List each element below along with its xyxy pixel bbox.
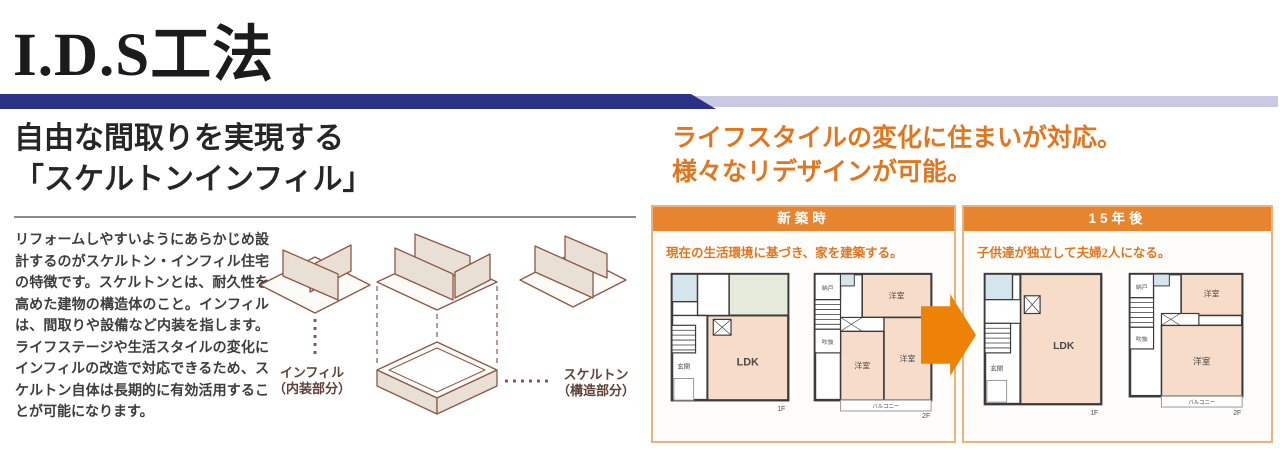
floor-label: 1F xyxy=(1090,410,1098,417)
balcony-label: バルコニー xyxy=(872,403,899,410)
room-label-ldk: LDK xyxy=(1053,341,1075,352)
floor-label: 1F xyxy=(777,406,785,413)
lifestyle-heading-line1: ライフスタイルの変化に住まいが対応。 xyxy=(672,122,1122,156)
skeleton-box xyxy=(377,342,497,414)
balcony-label: バルコニー xyxy=(1188,399,1215,406)
skeleton-sublabel: （構造部分） xyxy=(557,383,635,398)
floor-label: 2F xyxy=(922,413,930,420)
divider-light-segment xyxy=(640,96,1278,107)
infill-unit-left xyxy=(260,245,370,313)
room-label-nando: 納戸 xyxy=(1136,283,1148,291)
brochure-page: I.D.S工法 自由な間取りを実現する 「スケルトンインフィル」 リフォームしや… xyxy=(0,0,1280,465)
heading-underline xyxy=(14,216,636,218)
section-heading: 自由な間取りを実現する 「スケルトンインフィル」 xyxy=(14,118,373,200)
infill-unit-right xyxy=(520,236,626,307)
infill-unit-middle xyxy=(377,234,497,310)
floorplan-shinchiku-2f: 納戸 吹抜 洋室 洋室 洋室 バルコニー 2F xyxy=(811,269,939,421)
panel-15years-description: 子供達が独立して夫婦2人になる。 xyxy=(977,242,1271,261)
panel-shinchiku-description: 現在の生活環境に基づき、家を建築する。 xyxy=(666,242,954,261)
section-heading-line2: 「スケルトンインフィル」 xyxy=(14,159,373,200)
lifestyle-heading-line2: 様々なリデザインが可能。 xyxy=(672,156,1122,190)
floorplan-15years-1f: LDK 玄関 1F xyxy=(981,269,1109,421)
room-label-fukinuke: 吹抜 xyxy=(1136,335,1148,343)
room-label-genkan: 玄関 xyxy=(677,362,690,371)
room-label-genkan: 玄関 xyxy=(990,364,1003,373)
room-label-bedroom1: 洋室 xyxy=(1204,289,1220,299)
panel-15years-header: 15年後 xyxy=(964,207,1271,231)
room-label-bedroom1: 洋室 xyxy=(889,291,905,301)
room-label-fukinuke: 吹抜 xyxy=(822,338,834,346)
room-label-bedroom3: 洋室 xyxy=(900,354,916,364)
skeleton-label: スケルトン xyxy=(563,367,628,382)
body-paragraph: リフォームしやすいようにあらかじめ設計するのがスケルトン・インフィル住宅の特徴で… xyxy=(15,229,269,423)
floorplan-15years-2f: 納戸 吹抜 洋室 洋室 バルコニー 2F xyxy=(1126,269,1254,421)
walls xyxy=(672,274,788,400)
infill-sublabel: （内装部分） xyxy=(273,381,351,396)
floorplan-shinchiku-1f: LDK 玄関 1F xyxy=(668,269,796,421)
floor-label: 2F xyxy=(1233,410,1241,417)
room-label-bedroom2: 洋室 xyxy=(854,361,870,371)
room-label-nando: 納戸 xyxy=(822,284,834,292)
page-title: I.D.S工法 xyxy=(13,4,274,93)
panel-shinchiku-header: 新築時 xyxy=(653,207,954,231)
panel-shinchiku: 新築時 現在の生活環境に基づき、家を建築する。 LDK xyxy=(651,205,956,443)
walls xyxy=(985,274,1101,404)
lifestyle-heading: ライフスタイルの変化に住まいが対応。 様々なリデザインが可能。 xyxy=(672,122,1122,190)
panel-shinchiku-floorplans: LDK 玄関 1F 納 xyxy=(653,269,954,421)
panel-15years: 15年後 子供達が独立して夫婦2人になる。 LDK 玄関 1F xyxy=(962,205,1273,443)
infill-label: インフィル xyxy=(280,365,344,380)
divider-dark-segment xyxy=(0,94,716,109)
section-heading-line1: 自由な間取りを実現する xyxy=(14,118,373,159)
room-label-bedroom2: 洋室 xyxy=(1193,356,1211,367)
skeleton-infill-diagram: インフィル （内装部分） スケルトン （構造部分） xyxy=(255,220,655,445)
room-label-ldk: LDK xyxy=(737,357,759,369)
panel-15years-floorplans: LDK 玄関 1F 納戸 吹 xyxy=(964,269,1271,421)
